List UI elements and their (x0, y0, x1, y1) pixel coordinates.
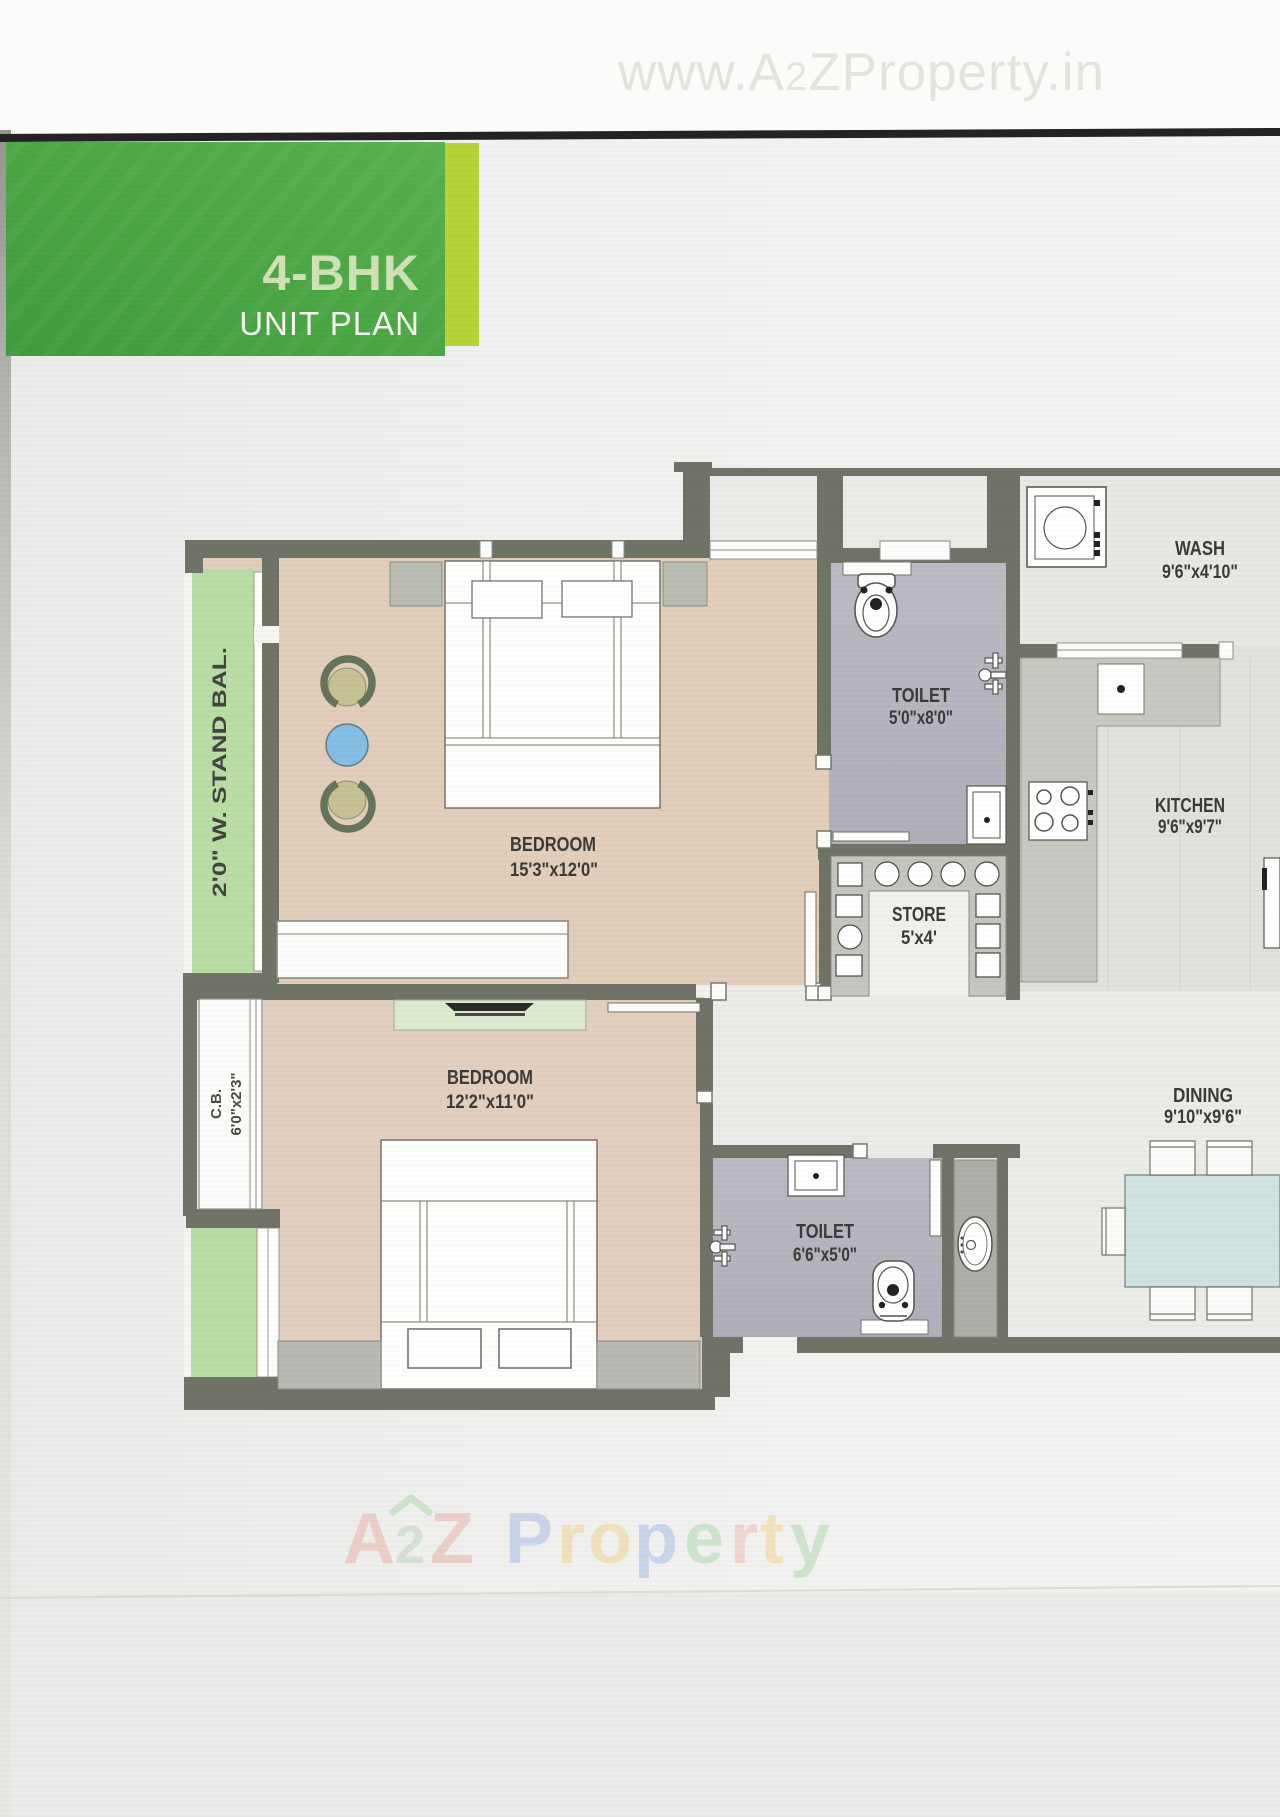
svg-text:r: r (730, 1499, 758, 1579)
svg-text:www.A2ZProperty.in: www.A2ZProperty.in (617, 43, 1105, 102)
svg-text:2: 2 (395, 1515, 425, 1575)
svg-text:o: o (588, 1499, 632, 1579)
svg-text:Z: Z (430, 1499, 474, 1579)
svg-text:A: A (343, 1499, 395, 1579)
svg-text:e: e (684, 1499, 724, 1579)
svg-text:P: P (505, 1499, 553, 1579)
svg-text:y: y (790, 1499, 830, 1579)
svg-text:p: p (634, 1499, 678, 1579)
svg-text:t: t (760, 1499, 784, 1579)
svg-text:r: r (557, 1499, 585, 1579)
